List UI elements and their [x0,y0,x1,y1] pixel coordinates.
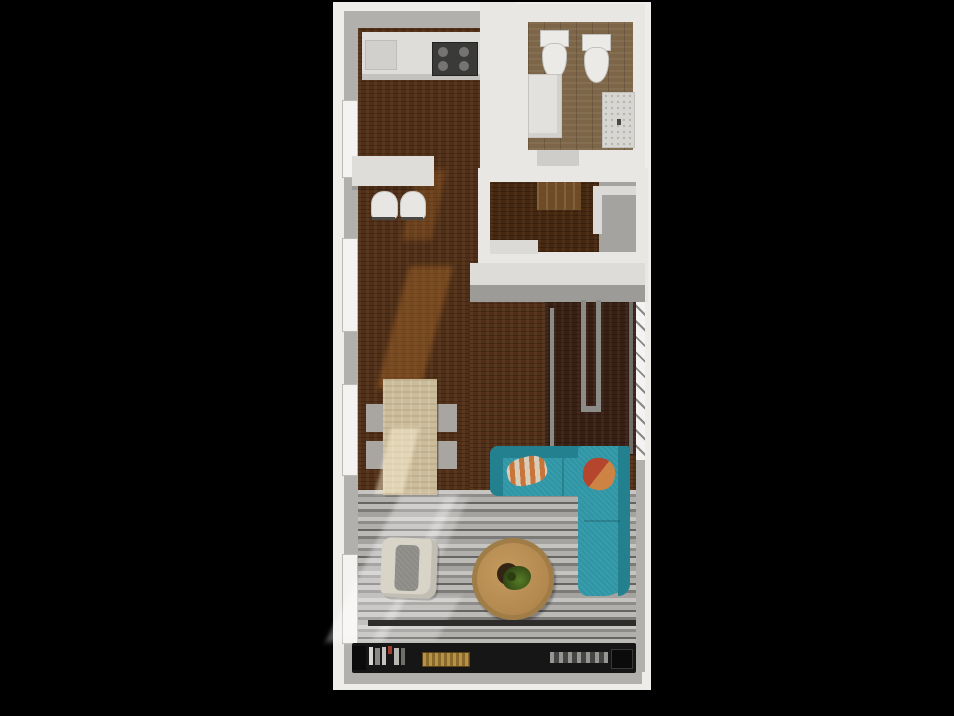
bar-stool[interactable] [400,191,424,221]
bathroom-door [537,150,579,166]
kitchen-bath-divider-wall [480,2,515,170]
burner [459,47,469,57]
armchair-cushion [394,545,420,592]
console-left-block [352,646,366,670]
toilet[interactable] [540,30,567,78]
floor-shelf-line [368,620,636,626]
burner [438,47,448,57]
sofa-seam [562,458,564,496]
book-spine[interactable] [394,648,399,665]
stair-railing-u-bottom [581,406,601,412]
burner [459,61,469,71]
dining-chair[interactable] [435,404,457,432]
stair-railing-u-right [596,300,601,412]
floor-plan [333,0,651,692]
book-spine[interactable] [388,646,392,654]
range-cooktop[interactable] [432,42,478,76]
stair-railing-left [550,308,554,448]
toilet[interactable] [582,34,609,82]
sofa-seam [584,520,620,522]
window [342,238,358,332]
speaker-block[interactable] [611,649,633,669]
armchair[interactable] [380,537,438,599]
plant-shadow-leaf [507,572,516,581]
stool-seat [400,191,426,219]
window [342,384,358,476]
book-spine[interactable] [382,647,386,665]
kitchen-appliance [365,40,397,70]
gold-decor-box[interactable] [422,652,470,667]
scene-background [0,0,954,716]
sink-drain [617,119,621,125]
stairwell-floor [545,300,636,455]
stair-railing-right [629,302,633,454]
book-spine[interactable] [369,647,373,665]
stool-legs [372,217,395,220]
tv-console[interactable] [352,643,636,673]
stone-counter[interactable] [602,92,635,148]
breakfast-counter[interactable] [352,156,434,186]
stool-legs [401,217,423,220]
entry-living-wall-top [470,263,645,285]
vanity-cabinet[interactable] [528,74,562,138]
entry-wall-stub [490,240,538,254]
book-spine[interactable] [375,648,380,665]
burner [438,61,448,71]
electronics-unit[interactable] [550,652,608,663]
sofa-armrest-left [490,446,503,496]
dining-chair[interactable] [435,441,457,469]
entry-living-wall-shade [470,285,645,302]
stool-seat [371,191,398,219]
stair-window [636,295,645,460]
entry-door-mat[interactable] [537,182,581,210]
top-wall [344,11,480,28]
book-spine[interactable] [401,648,405,665]
bottom-wall [344,672,642,684]
closet-trim-horizontal [593,186,636,195]
bar-stool[interactable] [371,191,396,221]
toilet-bowl [584,47,609,83]
stair-railing-u-left [581,300,586,412]
